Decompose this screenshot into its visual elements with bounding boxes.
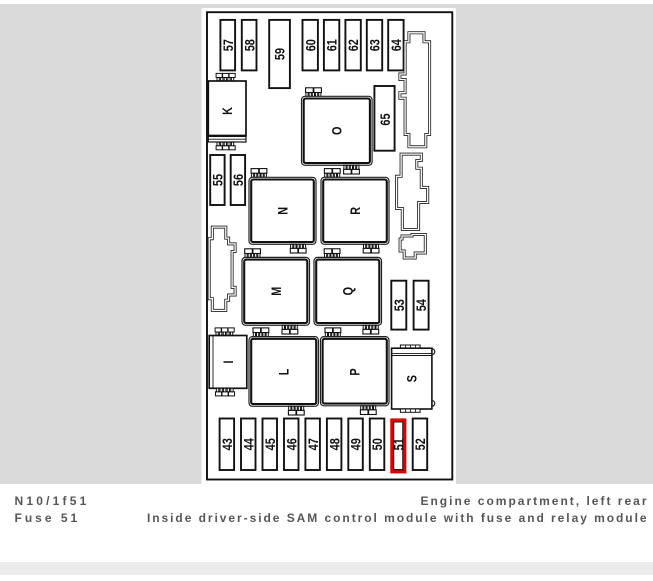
svg-text:55: 55 (210, 174, 226, 186)
svg-text:P: P (347, 368, 362, 375)
svg-text:61: 61 (324, 39, 340, 51)
svg-text:48: 48 (327, 438, 343, 450)
svg-text:45: 45 (263, 438, 279, 450)
svg-text:59: 59 (272, 48, 288, 60)
svg-text:57: 57 (221, 39, 237, 51)
svg-text:L: L (276, 368, 291, 375)
svg-text:58: 58 (242, 39, 258, 51)
svg-text:62: 62 (346, 39, 362, 51)
svg-text:56: 56 (231, 174, 247, 186)
svg-text:47: 47 (306, 438, 322, 450)
svg-text:Inside driver-side SAM control: Inside driver-side SAM control module wi… (147, 511, 649, 525)
svg-text:64: 64 (389, 39, 405, 51)
svg-text:O: O (329, 127, 344, 135)
svg-text:44: 44 (241, 438, 257, 450)
svg-text:43: 43 (220, 438, 236, 450)
svg-text:60: 60 (303, 39, 319, 51)
svg-text:M: M (269, 287, 284, 296)
svg-text:53: 53 (392, 299, 408, 311)
svg-text:46: 46 (284, 438, 300, 450)
svg-text:65: 65 (378, 113, 394, 125)
svg-text:Fuse 51: Fuse 51 (15, 511, 81, 525)
svg-text:63: 63 (367, 39, 383, 51)
svg-text:I: I (221, 360, 236, 363)
svg-text:N10/1f51: N10/1f51 (15, 494, 90, 508)
svg-text:49: 49 (348, 438, 364, 450)
svg-text:S: S (404, 375, 419, 382)
svg-text:K: K (220, 107, 235, 115)
svg-text:R: R (348, 207, 363, 215)
svg-text:50: 50 (370, 438, 386, 450)
svg-text:Q: Q (340, 287, 355, 295)
svg-text:N: N (275, 207, 290, 215)
svg-text:52: 52 (413, 438, 429, 450)
svg-text:54: 54 (414, 299, 430, 311)
svg-text:Engine compartment, left rear: Engine compartment, left rear (420, 494, 648, 508)
